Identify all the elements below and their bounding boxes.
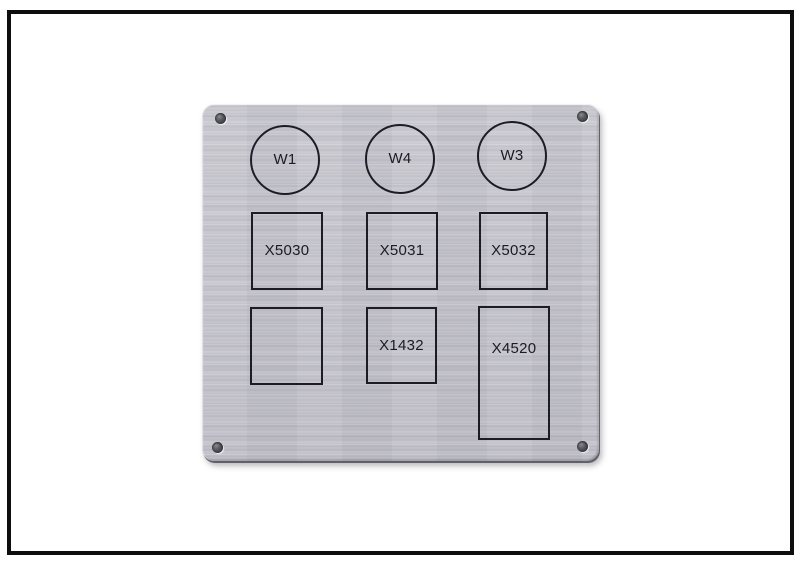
screw-hole-top-left <box>215 113 226 124</box>
box-marker-empty <box>250 307 323 385</box>
metal-label-plate: W1 W4 W3 X5030 X5031 X5032 X1432 X4520 <box>202 104 599 461</box>
circle-marker-label: W4 <box>388 150 411 168</box>
circle-marker-w4: W4 <box>365 124 435 194</box>
circle-marker-w1: W1 <box>250 125 320 195</box>
circle-marker-label: W1 <box>273 151 296 169</box>
box-marker-x5030: X5030 <box>251 212 323 290</box>
screw-hole-top-right <box>577 111 588 122</box>
box-marker-x5032: X5032 <box>479 212 548 290</box>
box-marker-label: X5030 <box>265 242 310 260</box>
circle-marker-w3: W3 <box>477 121 547 191</box>
product-photo-canvas: W1 W4 W3 X5030 X5031 X5032 X1432 X4520 <box>0 0 800 565</box>
circle-marker-label: W3 <box>500 147 523 165</box>
screw-hole-bottom-right <box>577 441 588 452</box>
box-marker-label: X5031 <box>380 242 425 260</box>
box-marker-label: X4520 <box>492 340 537 358</box>
box-marker-label: X1432 <box>379 337 424 355</box>
box-marker-x5031: X5031 <box>366 212 438 290</box>
box-marker-x4520: X4520 <box>478 306 550 440</box>
box-marker-label: X5032 <box>491 242 536 260</box>
box-marker-x1432: X1432 <box>366 307 437 384</box>
screw-hole-bottom-left <box>212 442 223 453</box>
